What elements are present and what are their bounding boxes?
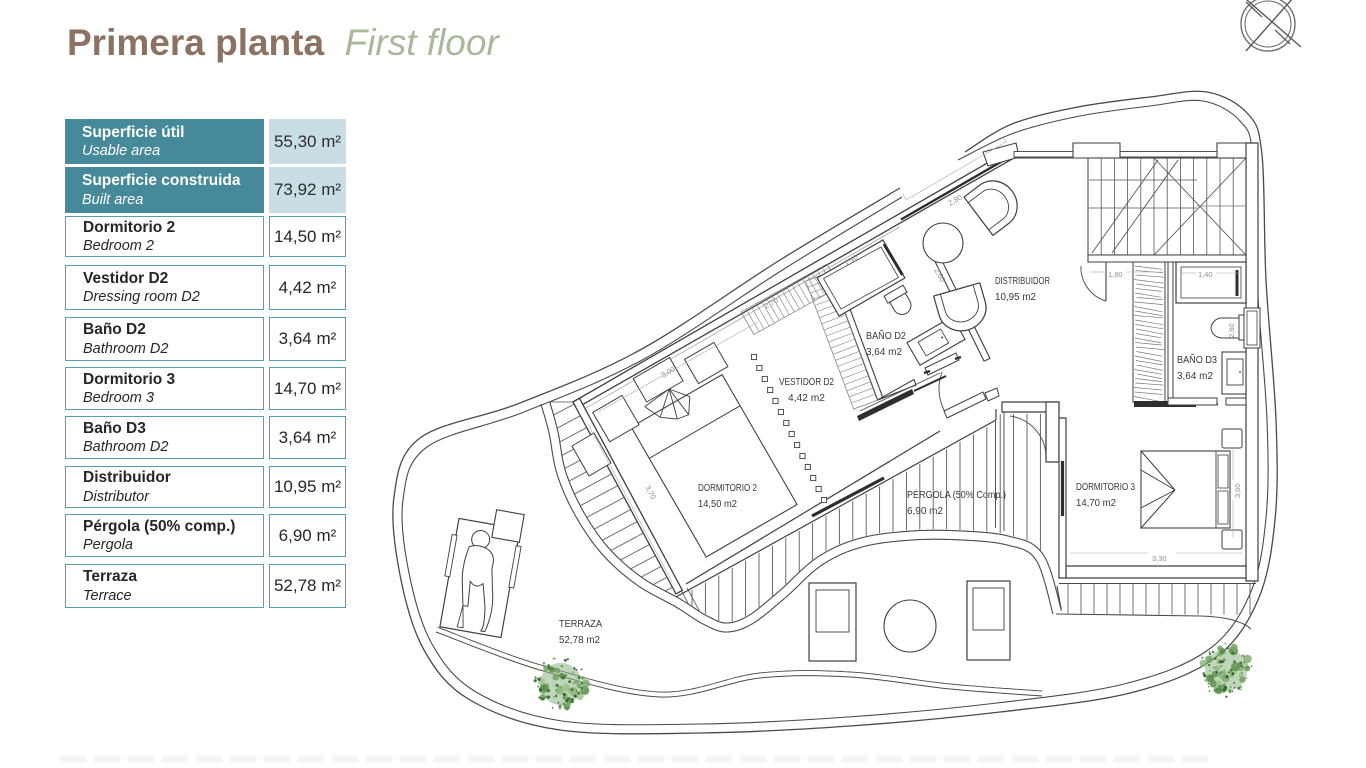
svg-text:1,40: 1,40: [1198, 270, 1213, 279]
svg-text:DISTRIBUIDOR: DISTRIBUIDOR: [995, 276, 1050, 287]
svg-text:14,70 m2: 14,70 m2: [1076, 498, 1116, 509]
svg-text:3,00: 3,00: [1233, 483, 1242, 498]
svg-text:10,95 m2: 10,95 m2: [995, 292, 1036, 303]
svg-text:TERRAZA: TERRAZA: [559, 619, 602, 630]
svg-text:2,60: 2,60: [1227, 323, 1236, 338]
svg-text:BAÑO D2: BAÑO D2: [866, 329, 906, 342]
svg-text:3,30: 3,30: [1152, 554, 1167, 563]
svg-text:VESTIDOR D2: VESTIDOR D2: [779, 377, 834, 388]
svg-text:3,70: 3,70: [643, 484, 658, 501]
svg-text:1,80: 1,80: [1108, 270, 1123, 279]
svg-text:4,42 m2: 4,42 m2: [788, 393, 825, 404]
svg-text:6,90 m2: 6,90 m2: [907, 506, 943, 517]
svg-text:3,64 m2: 3,64 m2: [1177, 371, 1213, 382]
svg-text:DORMITORIO 2: DORMITORIO 2: [698, 483, 757, 494]
svg-text:52,78 m2: 52,78 m2: [559, 635, 600, 646]
svg-text:14,50 m2: 14,50 m2: [698, 499, 737, 510]
svg-text:DORMITORIO 3: DORMITORIO 3: [1076, 482, 1135, 493]
svg-text:BAÑO D3: BAÑO D3: [1177, 353, 1217, 366]
svg-text:3,64 m2: 3,64 m2: [866, 347, 902, 358]
svg-text:PÉRGOLA (50% Comp.): PÉRGOLA (50% Comp.): [907, 488, 1006, 501]
